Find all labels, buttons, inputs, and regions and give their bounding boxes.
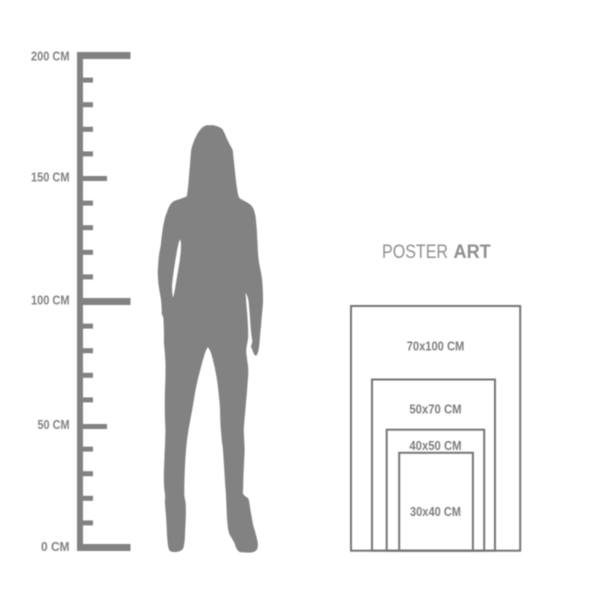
svg-text:ART: ART xyxy=(454,242,492,263)
svg-text:50 CM: 50 CM xyxy=(38,418,70,432)
svg-text:150 CM: 150 CM xyxy=(31,170,70,184)
svg-text:100 CM: 100 CM xyxy=(31,294,70,308)
svg-text:POSTER: POSTER xyxy=(382,242,448,263)
svg-text:0 CM: 0 CM xyxy=(41,540,70,554)
svg-text:40x50 CM: 40x50 CM xyxy=(409,438,461,453)
svg-text:50x70 CM: 50x70 CM xyxy=(409,402,461,417)
svg-text:200 CM: 200 CM xyxy=(31,50,70,64)
svg-text:30x40 CM: 30x40 CM xyxy=(410,504,461,519)
svg-text:70x100 CM: 70x100 CM xyxy=(407,339,465,354)
